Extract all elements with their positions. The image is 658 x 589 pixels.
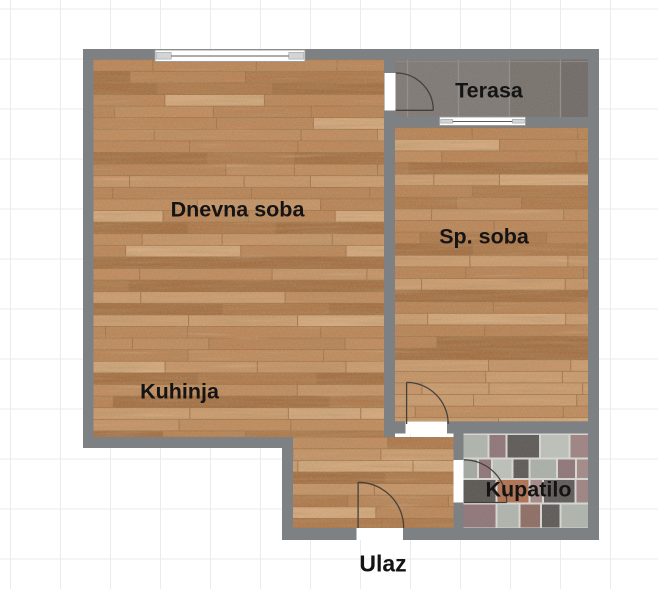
svg-text:Terasa: Terasa bbox=[455, 79, 524, 103]
svg-text:Dnevna soba: Dnevna soba bbox=[171, 198, 306, 222]
svg-text:Kuhinja: Kuhinja bbox=[140, 379, 220, 403]
svg-text:Ulaz: Ulaz bbox=[359, 551, 406, 577]
svg-text:Kupatilo: Kupatilo bbox=[486, 478, 572, 502]
svg-text:Sp. soba: Sp. soba bbox=[439, 224, 530, 248]
